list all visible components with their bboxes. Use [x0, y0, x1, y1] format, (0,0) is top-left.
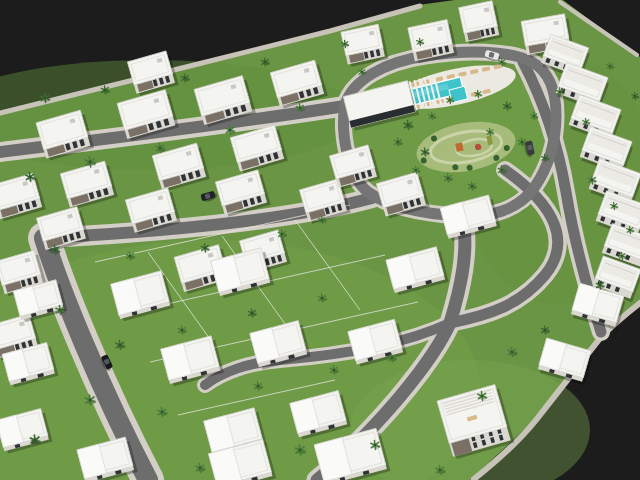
palm-crown — [374, 444, 377, 447]
car-windshield — [527, 145, 533, 151]
palm-crown — [477, 93, 479, 95]
palm-crown — [397, 141, 399, 143]
palm-crown — [449, 99, 451, 101]
palm-crown — [344, 43, 346, 45]
rooftop-ac-unit — [553, 21, 559, 26]
screenshot-canvas — [0, 0, 640, 480]
palm-crown — [44, 97, 47, 100]
palm-crown — [407, 124, 410, 127]
palm-crown — [501, 169, 503, 171]
palm-crown — [321, 297, 323, 299]
palm-crown — [257, 385, 259, 387]
palm-crown — [447, 177, 449, 179]
palm-crown — [59, 309, 62, 312]
palm-crown — [333, 369, 335, 371]
palm-crown — [544, 157, 546, 159]
palm-crown — [424, 151, 426, 153]
palm-crown — [481, 395, 484, 398]
palm-crown — [104, 89, 106, 91]
palm-crown — [204, 247, 206, 249]
palm-crown — [34, 439, 37, 442]
palm-crown — [159, 147, 162, 150]
play-structure — [455, 143, 463, 152]
palm-crown — [544, 329, 546, 331]
palm-crown — [229, 129, 232, 132]
palm-crown — [89, 161, 92, 164]
palm-crown — [431, 115, 433, 117]
palm-crown — [264, 61, 266, 63]
palm-crown — [29, 176, 32, 179]
palm-crown — [613, 205, 615, 207]
duplex-house — [459, 0, 503, 45]
palm-crown — [251, 312, 253, 314]
palm-crown — [634, 95, 636, 97]
palm-crown — [119, 344, 122, 347]
palm-crown — [181, 329, 183, 331]
palm-crown — [629, 229, 631, 231]
palm-crown — [321, 219, 323, 221]
palm-crown — [129, 255, 131, 257]
palm-crown — [585, 121, 587, 123]
palm-crown — [609, 65, 611, 67]
palm-crown — [184, 77, 186, 79]
palm-crown — [511, 351, 514, 354]
palm-crown — [506, 105, 508, 107]
palm-crown — [533, 115, 535, 117]
site-plan-3d-render — [0, 0, 640, 480]
palm-crown — [54, 249, 57, 252]
palm-crown — [559, 91, 561, 93]
palm-crown — [621, 255, 623, 257]
palm-crown — [361, 71, 363, 73]
palm-crown — [419, 41, 421, 43]
palm-crown — [161, 411, 164, 414]
palm-crown — [501, 61, 503, 63]
palm-crown — [415, 169, 417, 171]
palm-crown — [199, 467, 202, 470]
palm-crown — [521, 141, 523, 143]
palm-crown — [89, 399, 92, 402]
palm-crown — [281, 233, 283, 235]
palm-crown — [391, 357, 393, 359]
palm-crown — [591, 179, 593, 181]
palm-crown — [299, 449, 302, 452]
palm-crown — [299, 107, 301, 109]
palm-crown — [471, 185, 473, 187]
palm-crown — [599, 284, 601, 286]
palm-crown — [489, 131, 491, 133]
palm-crown — [439, 469, 442, 472]
